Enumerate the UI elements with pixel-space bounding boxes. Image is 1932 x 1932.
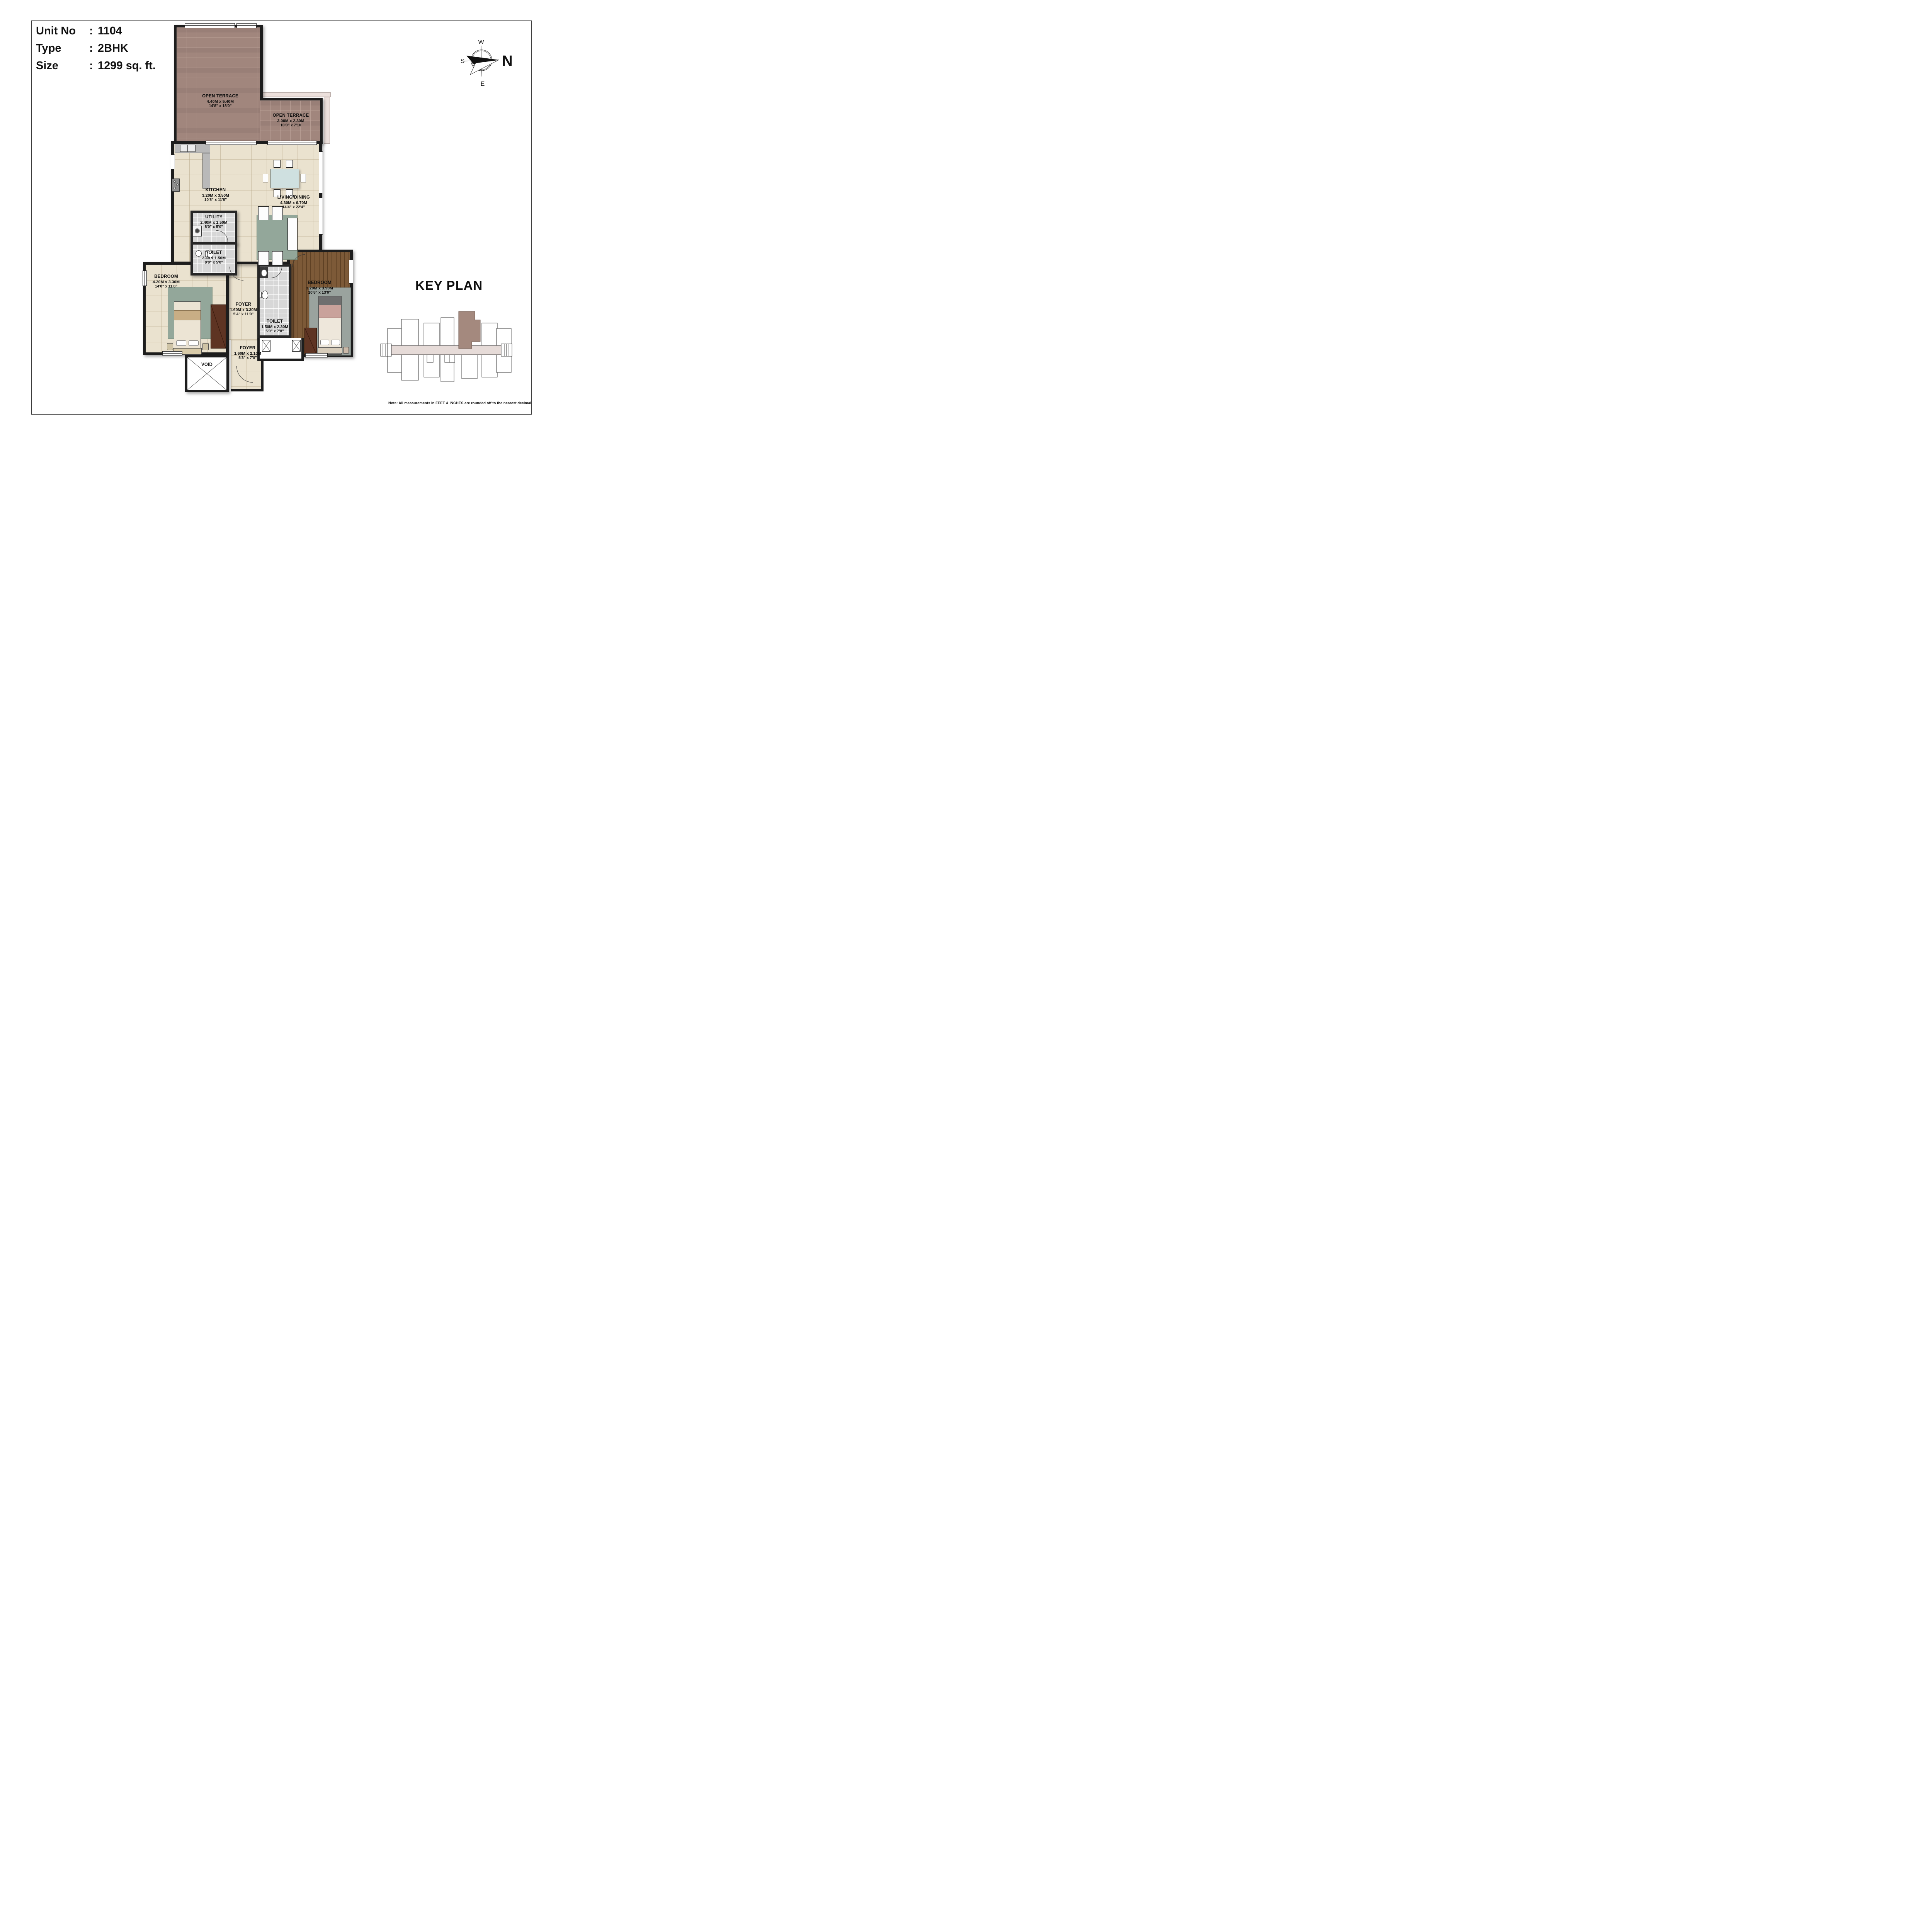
room-name: OPEN TERRACE — [193, 94, 247, 99]
terrace-parapet — [324, 97, 330, 144]
type-label: Type — [36, 40, 89, 57]
bed-blanket — [174, 310, 201, 320]
compass-west-label: W — [478, 39, 484, 46]
keyplan-block — [497, 355, 511, 372]
sofa — [272, 251, 283, 265]
room-open-terrace-1 — [174, 25, 263, 144]
burner — [176, 184, 179, 186]
room-name: TOILET — [193, 250, 235, 256]
bed-pillow — [176, 340, 186, 346]
room-dim-imperial: 5'0" x 7'8" — [260, 329, 290, 334]
compass-south-label: S — [461, 58, 465, 65]
room-name: TOILET — [260, 319, 290, 325]
window — [162, 351, 182, 355]
bed — [318, 296, 342, 355]
keyplan-block — [441, 318, 454, 346]
window — [206, 141, 257, 145]
room-dim-imperial: 8'0" x 5'0" — [193, 225, 235, 230]
terrace-parapet — [263, 92, 331, 97]
label-toilet-1: TOILET 2.40 x 1.50M 8'0" x 5'0" — [193, 250, 235, 265]
type-value: 2BHK — [98, 42, 128, 54]
bed-headboard — [318, 347, 342, 354]
keyplan-block — [401, 355, 418, 380]
wardrobe — [211, 304, 226, 349]
key-plan-title: KEY PLAN — [415, 278, 483, 293]
nightstand — [202, 343, 209, 350]
sofa — [258, 251, 269, 265]
room-dim-imperial: 5'3" x 7'0" — [232, 356, 264, 361]
keyplan-block — [462, 355, 477, 379]
room-name: OPEN TERRACE — [267, 113, 315, 119]
keyplan-unit-highlight — [459, 311, 480, 349]
nightstand — [343, 347, 349, 354]
room-dim-imperial: 5'4" x 11'0" — [226, 312, 261, 317]
label-utility: UTILITY 2.40M x 1.50M 8'0" x 5'0" — [193, 215, 235, 230]
keyplan-block — [497, 328, 511, 346]
bed-pillow — [189, 340, 199, 346]
room-dim-metric: 3.00M x 2.30M — [267, 119, 315, 123]
room-dim-metric: 4.30M x 6.70M — [269, 201, 319, 205]
nightstand — [167, 343, 173, 350]
window — [319, 151, 323, 193]
colon: : — [89, 40, 98, 57]
bed — [174, 301, 201, 355]
label-void: VOID — [187, 362, 227, 368]
window — [349, 260, 353, 284]
burner — [173, 187, 176, 189]
room-dim-metric: 1.60M x 2.10M — [232, 351, 264, 356]
keyplan-lift — [450, 355, 455, 362]
keyplan-lift — [427, 355, 433, 362]
bed-pillow — [320, 340, 329, 345]
burner — [173, 180, 176, 183]
sofa — [287, 218, 298, 250]
room-dim-imperial: 10'8" x 13'0" — [297, 291, 342, 295]
room-dim-imperial: 10'8" x 11'8" — [192, 198, 239, 202]
room-name: KITCHEN — [192, 188, 239, 193]
label-toilet-2: TOILET 1.50M x 2.30M 5'0" x 7'8" — [260, 319, 290, 334]
room-dim-metric: 4.40M x 5.40M — [193, 99, 247, 104]
room-name: BEDROOM — [297, 281, 342, 286]
room-name: UTILITY — [193, 215, 235, 220]
kitchen-sink — [180, 145, 196, 152]
bed-pillow — [331, 340, 340, 345]
stove — [172, 179, 180, 192]
room-dim-imperial: 14'8" x 18'0" — [193, 104, 247, 109]
room-dim-metric: 2.40M x 1.50M — [193, 220, 235, 225]
wash-basin — [261, 269, 267, 277]
label-kitchen: KITCHEN 3.20M x 3.50M 10'8" x 11'8" — [192, 188, 239, 202]
room-dim-metric: 1.50M x 2.30M — [260, 325, 290, 329]
window — [267, 141, 317, 145]
keyplan-block — [424, 323, 439, 346]
kitchen-counter — [202, 153, 210, 189]
room-dim-imperial: 8'0" x 5'0" — [193, 260, 235, 265]
keyplan-corridor — [381, 345, 512, 355]
unit-info-row: Unit No:1104 — [36, 22, 156, 40]
room-name: LIVING/DINING — [269, 195, 319, 201]
room-dim-metric: 2.40 x 1.50M — [193, 256, 235, 260]
room-dim-metric: 1.60M x 3.30M — [226, 308, 261, 312]
label-open-terrace-1: OPEN TERRACE 4.40M x 5.40M 14'8" x 18'0" — [193, 94, 247, 109]
dining-chair — [286, 160, 293, 168]
toilet-tank — [259, 292, 262, 298]
dining-chair — [263, 174, 268, 182]
label-living-dining: LIVING/DINING 4.30M x 6.70M 14'4" x 22'4… — [269, 195, 319, 210]
shaft-box — [292, 340, 301, 352]
room-dim-imperial: 10'0" x 7'10 — [267, 123, 315, 128]
room-name: FOYER — [232, 346, 264, 351]
window — [319, 198, 323, 235]
window — [236, 23, 257, 28]
label-bedroom-2: BEDROOM 3.20M x 3.90M 10'8" x 13'0" — [297, 281, 342, 295]
size-value: 1299 sq. ft. — [98, 60, 156, 72]
bed-blanket — [319, 305, 341, 318]
room-dim-metric: 3.20M x 3.90M — [297, 286, 342, 291]
compass-east-label: E — [481, 81, 485, 87]
room-dim-imperial: 14'0" x 11'0" — [146, 284, 186, 289]
measurement-note: Note: All measurements in FEET & INCHES … — [388, 401, 531, 405]
bed-throw — [319, 296, 341, 305]
label-bedroom-1: BEDROOM 4.20M x 3.30M 14'0" x 11'0" — [146, 274, 186, 289]
window — [185, 23, 235, 28]
sofa — [258, 206, 269, 220]
size-label: Size — [36, 57, 89, 75]
window — [171, 155, 175, 169]
keyplan-block — [482, 323, 497, 346]
dining-chair — [274, 160, 281, 168]
room-dim-metric: 3.20M x 3.50M — [192, 193, 239, 198]
label-foyer-2: FOYER 1.60M x 2.10M 5'3" x 7'0" — [232, 346, 264, 361]
room-name: BEDROOM — [146, 274, 186, 280]
window — [305, 353, 328, 357]
unit-info-row: Type:2BHK — [36, 40, 156, 57]
room-name: FOYER — [226, 302, 261, 308]
room-void — [185, 355, 229, 392]
colon: : — [89, 22, 98, 40]
room-dim-imperial: 14'4" x 22'4" — [269, 205, 319, 210]
unit-no-value: 1104 — [98, 25, 122, 37]
colon: : — [89, 57, 98, 75]
compass-icon: W S E N — [458, 39, 520, 89]
keyplan-lift — [445, 355, 450, 362]
room-dim-metric: 4.20M x 3.30M — [146, 280, 186, 284]
wardrobe — [304, 328, 317, 355]
dining-chair — [301, 174, 306, 182]
compass-north-label: N — [502, 53, 512, 69]
floorplan-page: Unit No:1104 Type:2BHK Size:1299 sq. ft.… — [0, 0, 563, 435]
toilet-bowl — [262, 291, 268, 299]
entrance-porch — [257, 338, 304, 361]
unit-info-block: Unit No:1104 Type:2BHK Size:1299 sq. ft. — [36, 22, 156, 75]
keyplan-block — [401, 319, 418, 346]
keyplan-stair — [381, 344, 391, 356]
vanity-counter — [260, 267, 268, 278]
room-name: VOID — [187, 362, 227, 368]
unit-info-row: Size:1299 sq. ft. — [36, 57, 156, 75]
key-plan-drawing — [369, 306, 524, 395]
label-open-terrace-2: OPEN TERRACE 3.00M x 2.30M 10'0" x 7'10 — [267, 113, 315, 128]
dining-table — [270, 169, 299, 188]
unit-no-label: Unit No — [36, 22, 89, 40]
keyplan-block — [482, 355, 497, 377]
label-foyer-1: FOYER 1.60M x 3.30M 5'4" x 11'0" — [226, 302, 261, 317]
